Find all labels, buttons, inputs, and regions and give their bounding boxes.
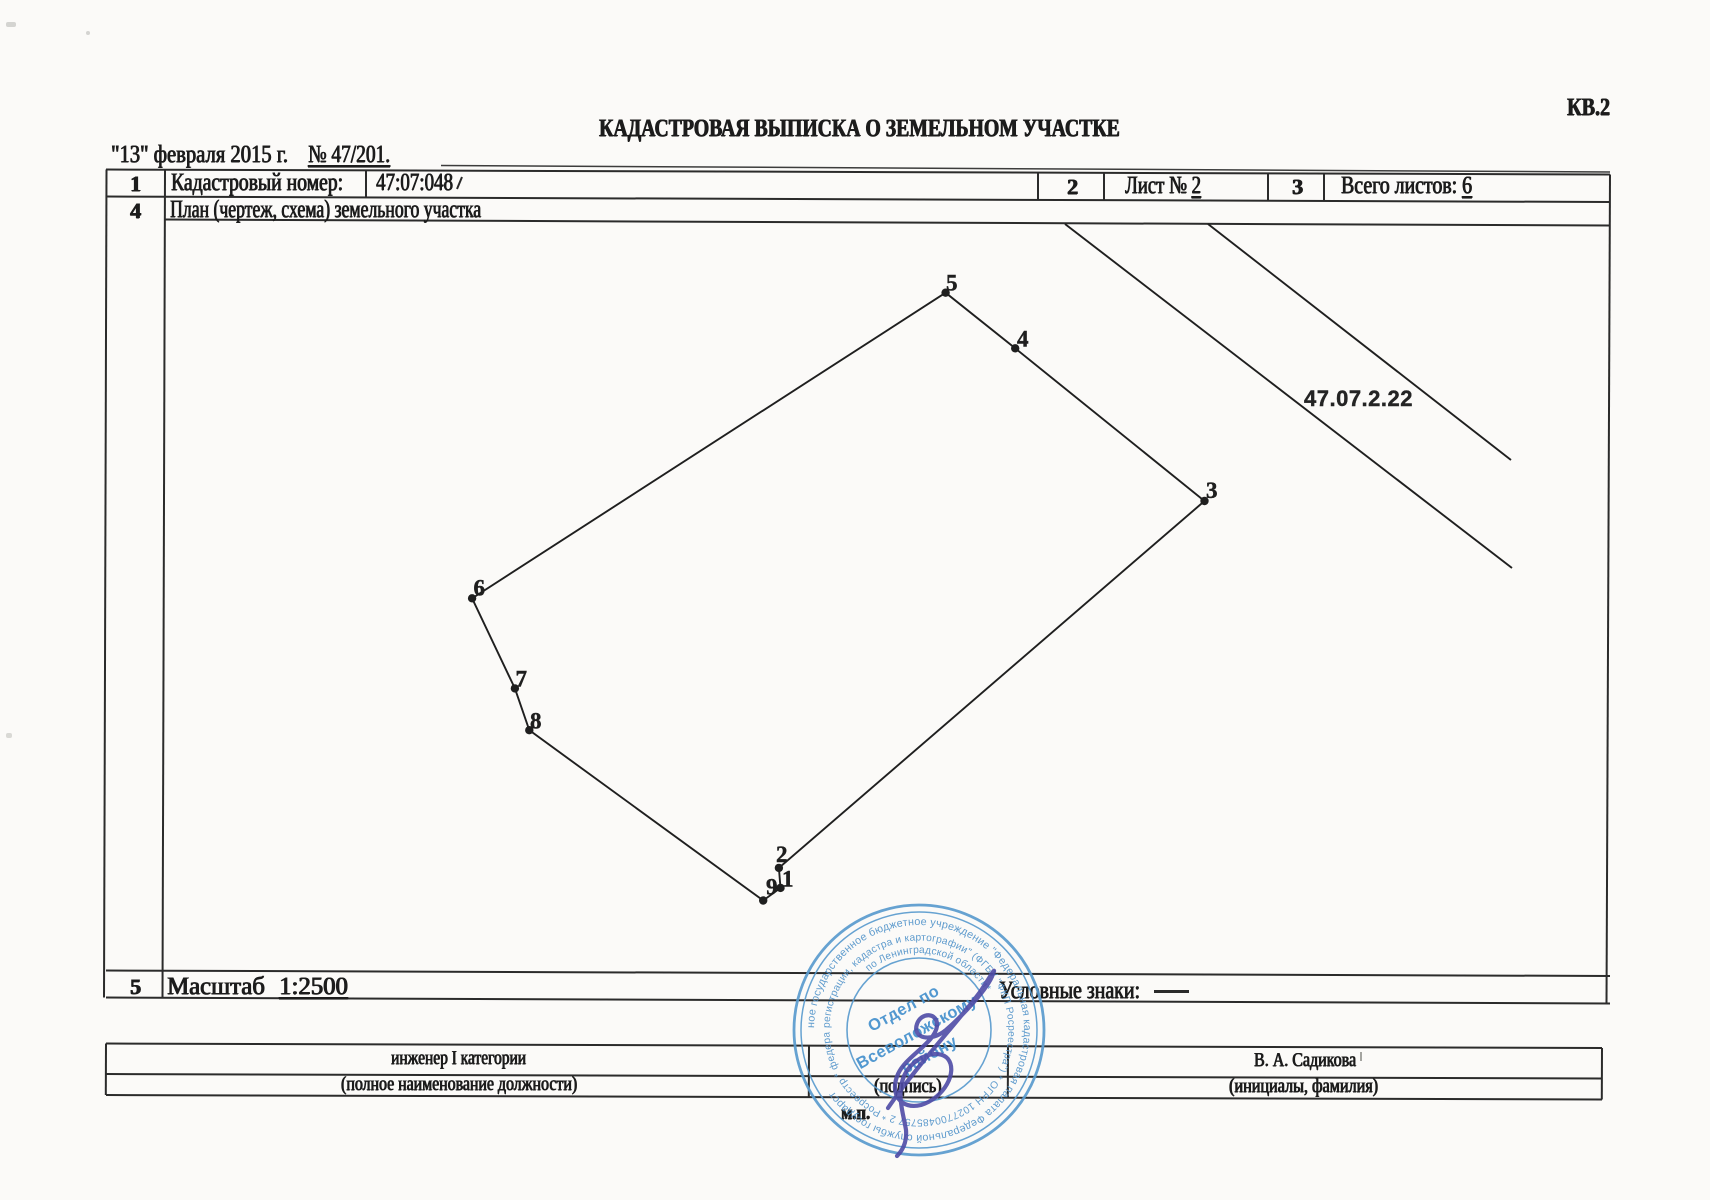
svg-text:8: 8: [530, 709, 542, 734]
svg-text:6: 6: [474, 576, 486, 601]
svg-text:регистрации, кадастра и картог: регистрации, кадастра и картографии" (ФГ…: [0, 0, 1017, 1128]
svg-text:47.07.2.22: 47.07.2.22: [1304, 386, 1413, 411]
svg-text:5: 5: [946, 271, 958, 296]
svg-text:3: 3: [1206, 478, 1218, 503]
svg-text:2: 2: [776, 842, 788, 867]
svg-text:7: 7: [516, 667, 528, 692]
svg-text:9: 9: [766, 875, 778, 900]
svg-text:4: 4: [1017, 327, 1029, 352]
svg-text:1: 1: [782, 867, 794, 892]
